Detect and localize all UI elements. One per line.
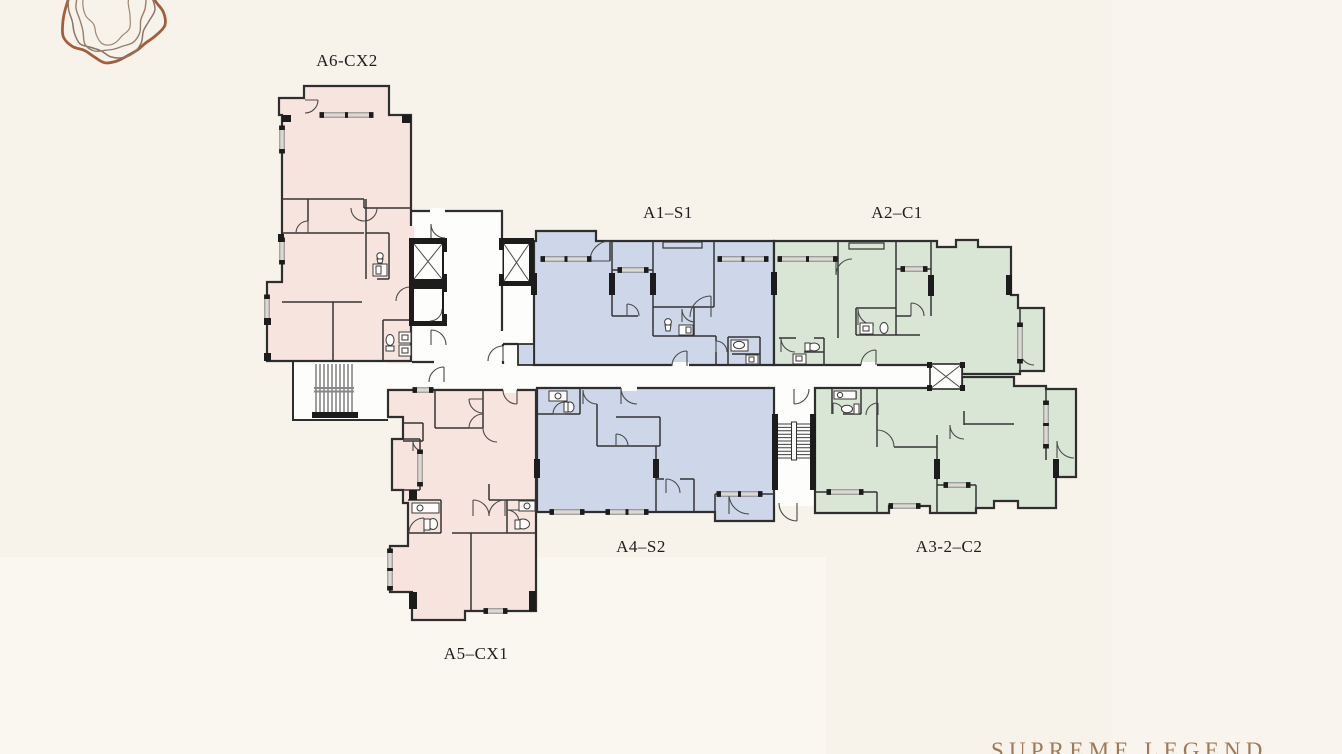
svg-text:A2–C1: A2–C1 xyxy=(871,203,923,222)
svg-text:A3-2–C2: A3-2–C2 xyxy=(916,537,983,556)
svg-text:SUPREME LEGEND: SUPREME LEGEND xyxy=(991,738,1268,754)
svg-text:A4–S2: A4–S2 xyxy=(616,537,666,556)
svg-text:A1–S1: A1–S1 xyxy=(643,203,693,222)
svg-text:A6-CX2: A6-CX2 xyxy=(316,51,378,70)
svg-text:A5–CX1: A5–CX1 xyxy=(444,644,508,663)
